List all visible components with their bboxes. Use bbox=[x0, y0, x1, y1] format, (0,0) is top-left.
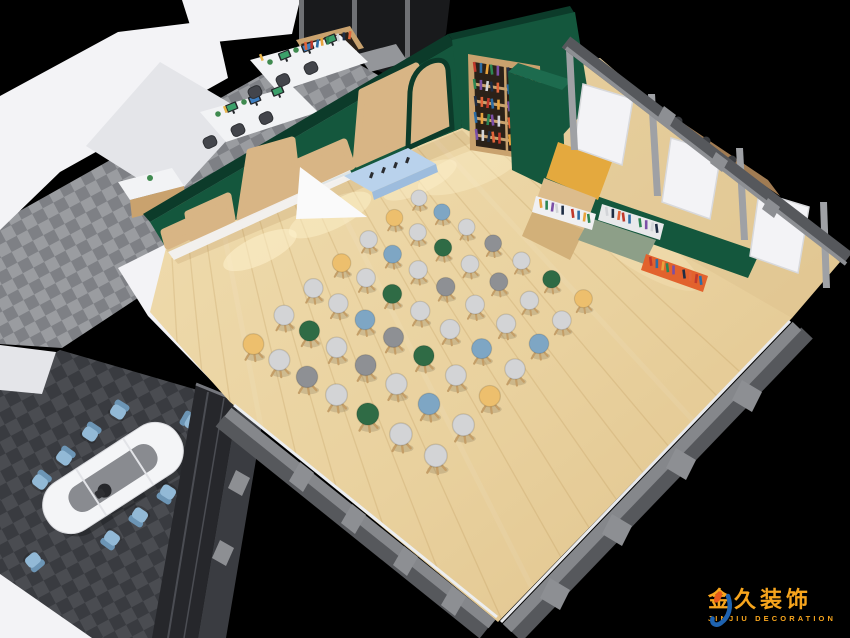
stool bbox=[574, 290, 593, 314]
stool bbox=[383, 327, 404, 353]
rendering-canvas: 金久装饰 JINJIU DECORATION bbox=[0, 0, 850, 638]
stool bbox=[269, 349, 291, 377]
book-spine bbox=[645, 220, 648, 229]
stool bbox=[386, 209, 404, 231]
stool bbox=[390, 423, 414, 452]
book-spine bbox=[327, 37, 330, 45]
stool bbox=[326, 384, 349, 413]
book-spine bbox=[343, 32, 346, 40]
book-spine bbox=[497, 66, 500, 76]
stool bbox=[299, 321, 321, 348]
book-spine bbox=[612, 209, 615, 218]
stool bbox=[485, 235, 503, 257]
book-spine bbox=[628, 215, 631, 224]
stool bbox=[329, 294, 350, 320]
stool bbox=[355, 355, 377, 383]
stool bbox=[436, 277, 456, 301]
stool bbox=[520, 291, 540, 315]
stool bbox=[409, 224, 427, 246]
book-spine bbox=[480, 80, 483, 90]
stool bbox=[326, 337, 348, 364]
stool bbox=[446, 365, 468, 392]
book-spine bbox=[656, 259, 659, 268]
stool bbox=[529, 334, 550, 360]
stool bbox=[296, 366, 319, 394]
book-spine bbox=[561, 206, 564, 215]
stool bbox=[543, 270, 562, 293]
stool bbox=[383, 284, 403, 309]
stool bbox=[466, 295, 486, 320]
stool bbox=[479, 386, 501, 414]
stool bbox=[360, 231, 379, 254]
stool bbox=[497, 314, 517, 339]
scene-svg bbox=[0, 0, 850, 638]
book-spine bbox=[480, 63, 483, 73]
stool bbox=[411, 301, 432, 326]
stool bbox=[513, 252, 531, 275]
stool bbox=[452, 414, 475, 443]
book-spine bbox=[672, 265, 675, 274]
stool bbox=[472, 339, 493, 365]
book-spine bbox=[498, 116, 501, 127]
stool bbox=[304, 279, 324, 304]
stool bbox=[461, 255, 480, 278]
book-spine bbox=[481, 113, 484, 124]
book-spine bbox=[497, 83, 500, 93]
stool bbox=[409, 261, 428, 285]
stool bbox=[418, 393, 441, 421]
book-spine bbox=[498, 133, 501, 144]
stool bbox=[434, 204, 451, 225]
stool bbox=[243, 334, 265, 361]
stool bbox=[332, 254, 352, 278]
book-spine bbox=[497, 100, 500, 110]
stool bbox=[440, 319, 461, 345]
stool bbox=[384, 245, 403, 269]
stool bbox=[424, 444, 448, 474]
stool bbox=[411, 190, 428, 211]
book-spine bbox=[689, 272, 692, 281]
brand-logo: 金久装饰 JINJIU DECORATION bbox=[708, 589, 836, 623]
book-spine bbox=[577, 211, 580, 220]
stool bbox=[505, 359, 527, 386]
stool bbox=[357, 403, 380, 432]
stool bbox=[490, 273, 509, 297]
book-spine bbox=[481, 97, 484, 107]
stool bbox=[386, 373, 409, 401]
book-spine bbox=[545, 201, 548, 210]
book-spine bbox=[310, 41, 313, 49]
logo-icon bbox=[708, 589, 738, 633]
book-spine bbox=[482, 130, 485, 141]
stool bbox=[458, 219, 476, 241]
stool bbox=[355, 310, 376, 336]
stool bbox=[357, 268, 377, 293]
stool bbox=[274, 305, 295, 331]
stool bbox=[434, 239, 453, 262]
stool bbox=[552, 311, 572, 336]
stool bbox=[414, 345, 436, 372]
